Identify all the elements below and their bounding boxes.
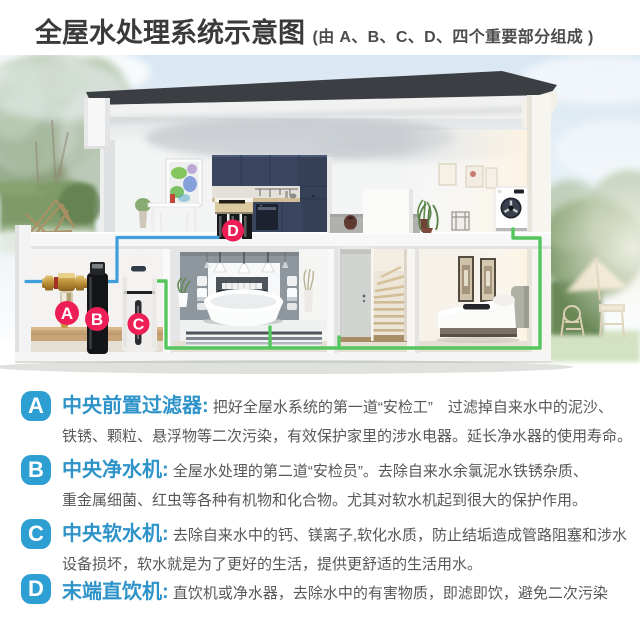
svg-text:B: B: [91, 310, 103, 329]
svg-text:D: D: [227, 223, 239, 240]
svg-text:C: C: [133, 317, 145, 334]
svg-text:A: A: [61, 304, 73, 323]
